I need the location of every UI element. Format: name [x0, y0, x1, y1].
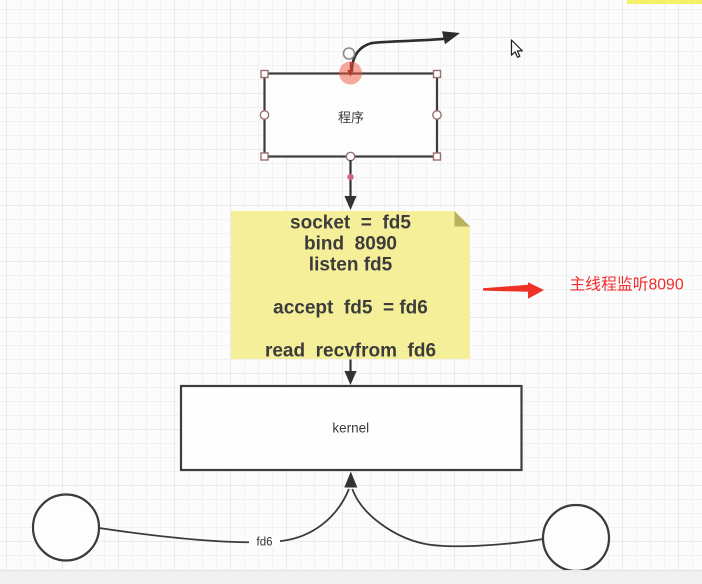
- svg-text:socket = fd5: socket = fd5: [290, 213, 411, 234]
- svg-text:fd6: fd6: [257, 537, 273, 549]
- svg-text:bind 8090: bind 8090: [304, 234, 397, 255]
- svg-text:accept fd5 = fd6: accept fd5 = fd6: [273, 298, 428, 319]
- svg-text:主线程监听8090: 主线程监听8090: [570, 276, 684, 294]
- svg-text:read recvfrom fd6: read recvfrom fd6: [265, 341, 436, 362]
- svg-text:listen fd5: listen fd5: [309, 255, 393, 276]
- svg-text:程序: 程序: [338, 110, 364, 125]
- svg-text:kernel: kernel: [332, 421, 369, 436]
